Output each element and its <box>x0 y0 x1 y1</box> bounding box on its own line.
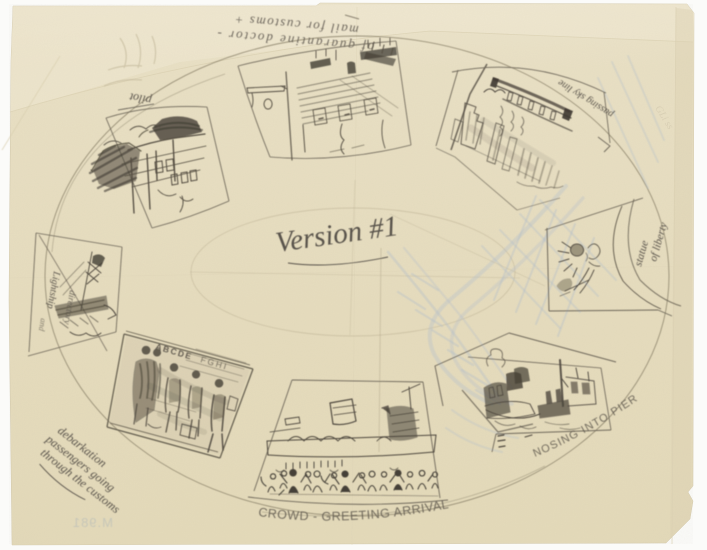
svg-text:M.981: M.981 <box>72 515 113 530</box>
